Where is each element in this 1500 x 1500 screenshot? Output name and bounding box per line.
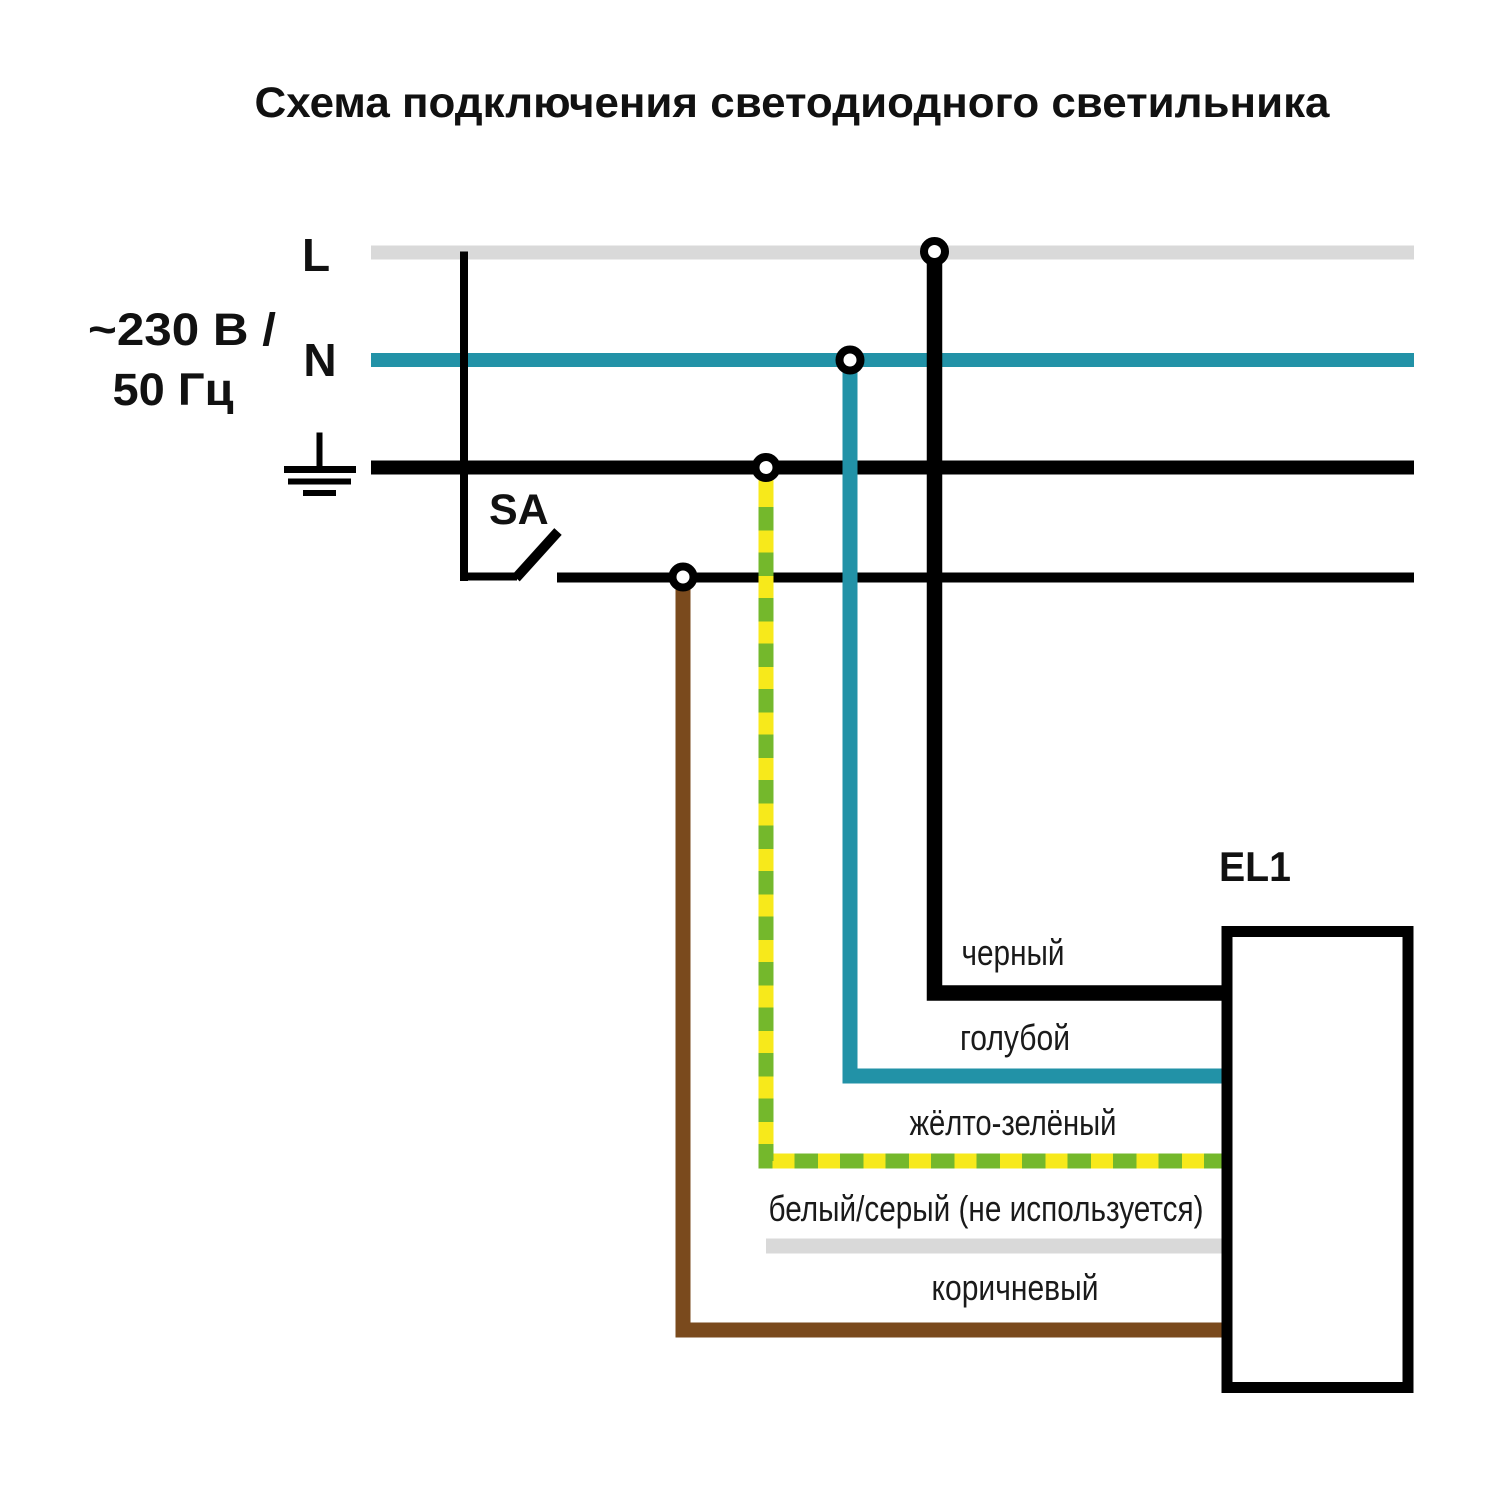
svg-text:50 Гц: 50 Гц	[113, 364, 234, 415]
svg-text:SA: SA	[489, 486, 549, 534]
svg-text:~230 В /: ~230 В /	[88, 304, 277, 355]
svg-text:Схема подключения светодиодног: Схема подключения светодиодного светильн…	[255, 79, 1331, 127]
svg-text:голубой: голубой	[960, 1017, 1070, 1058]
svg-text:N: N	[303, 334, 336, 386]
svg-text:черный: черный	[962, 932, 1065, 973]
svg-text:коричневый: коричневый	[932, 1267, 1099, 1308]
svg-text:L: L	[302, 229, 330, 281]
svg-text:жёлто-зелёный: жёлто-зелёный	[910, 1102, 1117, 1143]
svg-text:белый/серый (не используется): белый/серый (не используется)	[769, 1188, 1204, 1229]
svg-text:EL1: EL1	[1219, 843, 1291, 890]
